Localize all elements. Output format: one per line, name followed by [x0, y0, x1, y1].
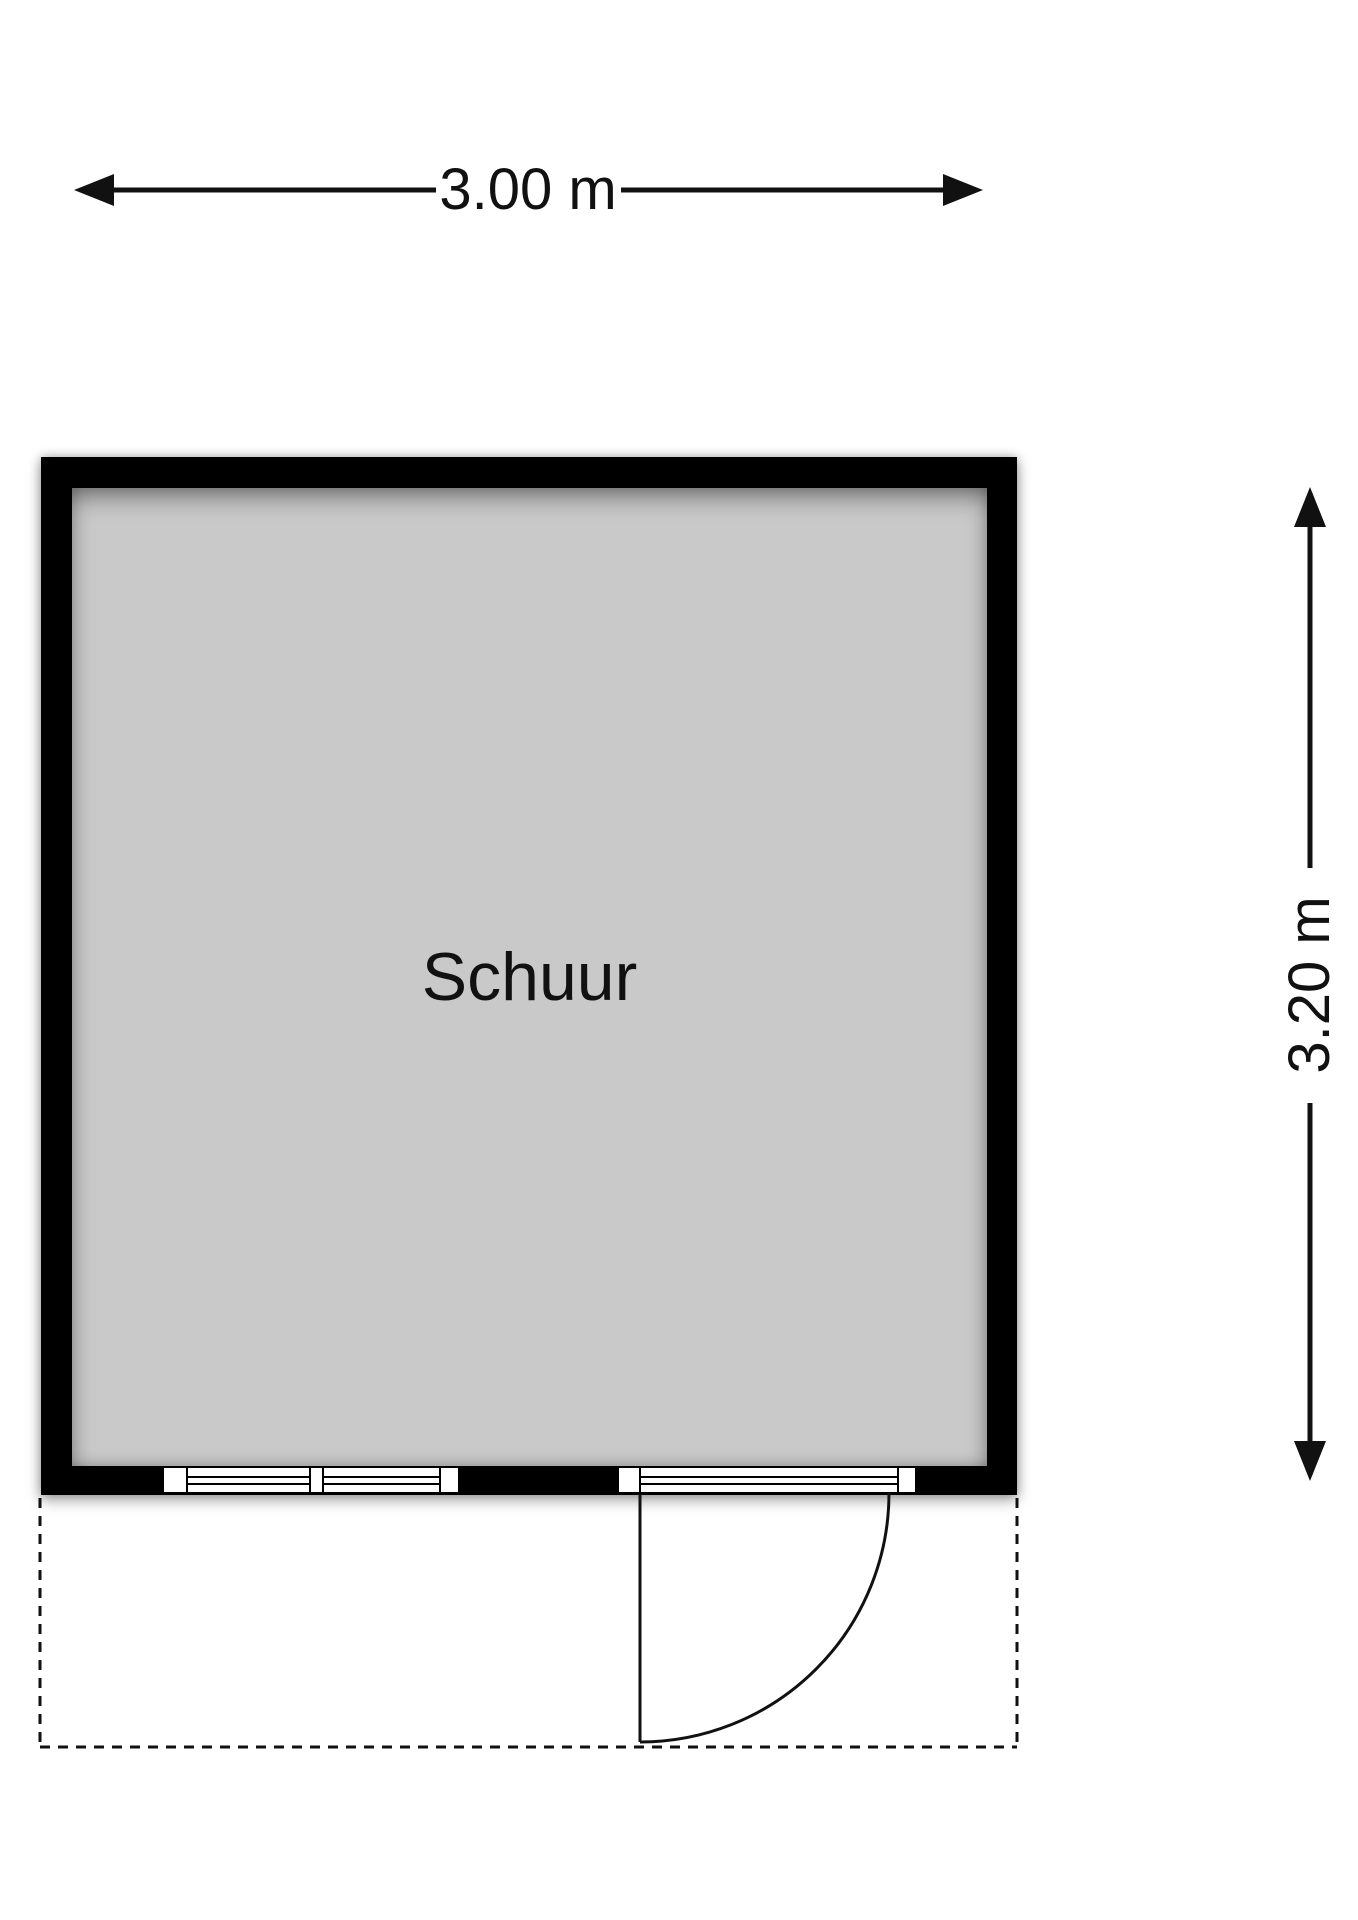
door-swing-icon	[640, 1493, 889, 1742]
window-pane	[322, 1468, 441, 1492]
canopy-dashed-outline	[40, 1498, 1017, 1747]
floorplan-canvas: Schuur	[0, 0, 1358, 1920]
door-glass-pane	[639, 1468, 899, 1492]
room-label: Schuur	[422, 943, 637, 1011]
window-pane	[186, 1468, 311, 1492]
width-dimension-label: 3.00 m	[378, 145, 678, 235]
height-dimension-label: 3.20 m	[1265, 835, 1355, 1135]
window-icon	[162, 1466, 460, 1494]
door-icon	[617, 1466, 917, 1494]
room-floor: Schuur	[72, 488, 987, 1466]
